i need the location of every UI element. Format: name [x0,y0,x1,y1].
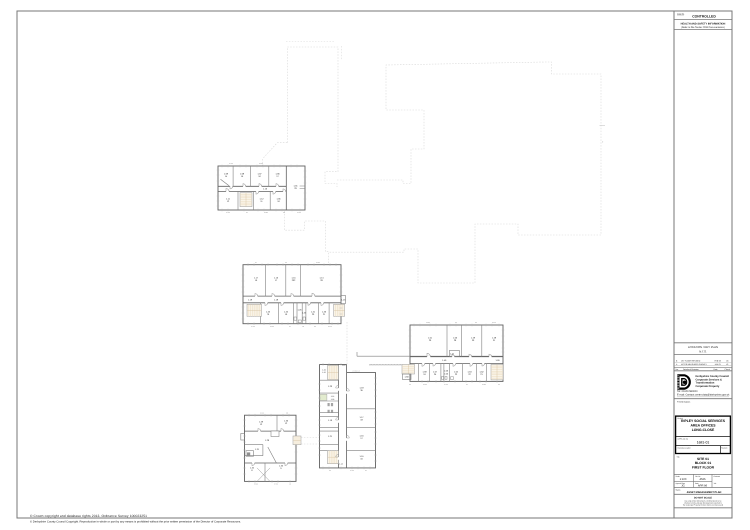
svg-text:1.25: 1.25 [322,371,326,374]
svg-text:LONG-CLOSE: LONG-CLOSE [692,428,715,432]
svg-text:2.740: 2.740 [350,469,354,472]
svg-text:N.T.S.: N.T.S. [699,349,707,353]
svg-text:1.20: 1.20 [328,385,333,388]
svg-text:1681-01: 1681-01 [697,440,710,444]
svg-text:2.740: 2.740 [444,383,448,386]
svg-text:1.23: 1.23 [331,398,335,401]
svg-text:1ST FLOOR REVISED: 1ST FLOOR REVISED [681,360,701,363]
svg-text:© Crown copyright and database: © Crown copyright and database rights 20… [30,514,147,518]
svg-text:the Corporate Property Divisio: the Corporate Property Division before w… [683,504,723,507]
svg-text:SITE 01: SITE 01 [697,457,709,461]
svg-text:4536: 4536 [700,478,706,481]
svg-text:1.55: 1.55 [444,373,449,376]
svg-text:Corporate Property: Corporate Property [696,385,720,388]
svg-text:2.2: 2.2 [409,383,411,386]
svg-text:2.740: 2.740 [274,483,278,486]
svg-text:1.21: 1.21 [328,435,333,438]
svg-text:FIRST FLOOR: FIRST FLOOR [692,466,715,470]
svg-text:2.2 3.4 1.8: 2.2 3.4 1.8 [352,370,359,373]
svg-text:CIPFA Job No: CIPFA Job No [678,437,689,440]
svg-text:1.46: 1.46 [442,359,447,362]
svg-text:No.: No. [676,368,679,371]
svg-text:3.580: 3.580 [482,383,486,386]
svg-text:2.740: 2.740 [251,325,255,328]
svg-text:2.5: 2.5 [498,383,500,386]
svg-text:(Refer to File Tender CDM Docu: (Refer to File Tender CDM Documentation) [681,26,725,29]
svg-text:3.410: 3.410 [328,325,332,328]
svg-text:4.120: 4.120 [297,211,301,214]
svg-text:1.14: 1.14 [339,463,343,466]
svg-text:2.4: 2.4 [455,321,457,324]
svg-text:4.2: 4.2 [285,261,287,264]
svg-text:E-mail: Contact.centre.data@de: E-mail: Contact.centre.data@derbyshire.g… [677,394,730,397]
svg-text:Contract: Contract [714,475,721,478]
svg-text:2.740: 2.740 [229,162,233,165]
svg-text:1.22: 1.22 [331,395,335,398]
svg-text:1.10: 1.10 [263,188,268,191]
svg-text:3.2: 3.2 [314,325,316,328]
svg-text:Drawing Location: Drawing Location [678,447,691,450]
svg-text:1.60: 1.60 [404,376,409,379]
svg-text:1:100: 1:100 [680,478,687,481]
svg-text:5.800: 5.800 [426,321,430,324]
svg-text:3.600: 3.600 [270,325,274,328]
svg-text:3.600: 3.600 [254,483,258,486]
svg-text:DO NOT SCALE: DO NOT SCALE [694,497,712,500]
svg-text:1.28: 1.28 [265,439,270,442]
svg-text:AREA OFFICES: AREA OFFICES [690,423,716,427]
svg-text:APR 96: APR 96 [698,485,708,488]
svg-text:Revision: Revision [721,446,727,449]
svg-text:Printed Outputs: Printed Outputs [677,400,690,403]
svg-text:© Derbyshire County Council Co: © Derbyshire County Council Copyright. R… [30,521,241,524]
svg-text:AFTER MEASURED SURVEY: AFTER MEASURED SURVEY [681,363,707,366]
svg-text:2.1: 2.1 [289,325,291,328]
svg-text:HEALTH AND SAFETY INFORMATION: HEALTH AND SAFETY INFORMATION [681,23,726,26]
svg-text:3.410: 3.410 [492,321,496,324]
svg-text:3.1: 3.1 [466,383,468,386]
svg-text:1.31: 1.31 [255,448,260,451]
svg-text:1.56: 1.56 [444,370,449,373]
svg-text:3.580: 3.580 [264,211,268,214]
svg-text:Check: Check [725,368,730,371]
svg-text:1.19: 1.19 [328,419,333,422]
svg-text:Status: Status [676,488,681,491]
svg-text:RIPLEY SOCIAL SERVICES: RIPLEY SOCIAL SERVICES [681,419,726,423]
svg-text:3.7: 3.7 [255,261,257,264]
svg-text:2.740: 2.740 [226,211,230,214]
svg-text:Details of Revision: Details of Revision [683,368,699,371]
svg-text:2: 2 [602,141,604,144]
svg-text:3.1: 3.1 [246,211,248,214]
svg-text:FEB 03: FEB 03 [715,360,721,363]
svg-text:3.600: 3.600 [423,383,427,386]
svg-text:1.18: 1.18 [274,299,279,302]
svg-text:2.2: 2.2 [329,469,331,472]
svg-text:3.1: 3.1 [365,469,367,472]
svg-text:1.25: 1.25 [297,309,302,312]
svg-text:1.19: 1.19 [248,299,253,302]
svg-text:1.59: 1.59 [495,359,500,362]
svg-text:JAN 01: JAN 01 [715,363,721,366]
svg-text:1.8: 1.8 [302,325,304,328]
svg-text:Title: Title [677,455,680,458]
svg-text:2.8: 2.8 [286,411,288,414]
svg-text:JG: JG [681,485,684,488]
svg-text:Job: Job [714,482,717,485]
svg-text:3.2: 3.2 [475,321,477,324]
svg-text:ASSET MANAGEMENT PLAN: ASSET MANAGEMENT PLAN [687,491,722,494]
svg-text:1.9: 1.9 [289,483,291,486]
svg-text:4.100: 4.100 [260,411,264,414]
svg-text:CONTROLLED: CONTROLLED [692,15,716,19]
svg-text:6.350: 6.350 [316,261,320,264]
svg-text:BLOCK 01: BLOCK 01 [695,461,711,465]
svg-text:Date: Date [714,368,718,371]
